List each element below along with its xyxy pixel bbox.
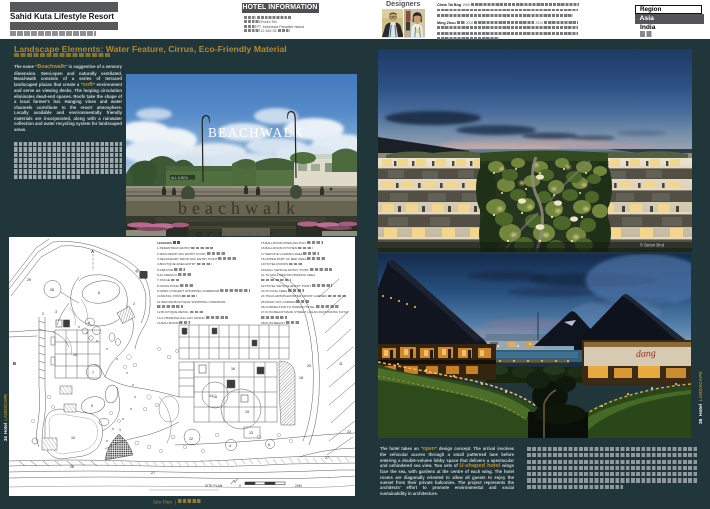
svg-text:6: 6 (268, 443, 270, 447)
svg-text:19: 19 (245, 410, 249, 414)
svg-text:beachwalk: beachwalk (178, 198, 300, 218)
svg-text:SITE PLAN: SITE PLAN (205, 484, 223, 488)
svg-text:13: 13 (249, 431, 253, 435)
svg-text:3: 3 (55, 310, 57, 314)
svg-text:2: 2 (133, 302, 135, 306)
svg-text:17: 17 (183, 332, 187, 336)
svg-text:© Beton Brut: © Beton Brut (640, 243, 665, 248)
svg-text:12: 12 (189, 437, 193, 441)
svg-text:B: B (13, 361, 16, 366)
svg-text:10: 10 (71, 436, 75, 440)
svg-text:23: 23 (347, 430, 351, 434)
svg-text:10: 10 (73, 353, 77, 357)
svg-text:20M: 20M (295, 484, 302, 488)
svg-text:ALL & BEA: ALL & BEA (171, 176, 189, 180)
svg-text:18: 18 (299, 376, 303, 380)
svg-text:7: 7 (92, 371, 94, 375)
svg-text:4: 4 (229, 444, 231, 448)
svg-text:6: 6 (88, 321, 90, 325)
svg-text:dang: dang (636, 348, 657, 360)
svg-text:8: 8 (98, 291, 100, 295)
svg-text:27: 27 (151, 471, 155, 475)
svg-text:1: 1 (119, 428, 121, 432)
svg-text:A: A (91, 249, 94, 254)
svg-text:11: 11 (339, 362, 343, 366)
svg-text:27: 27 (325, 456, 329, 460)
svg-text:2: 2 (42, 312, 44, 316)
svg-text:15: 15 (213, 395, 217, 399)
svg-text:26: 26 (70, 465, 74, 469)
svg-text:BEACHWALK: BEACHWALK (208, 125, 304, 140)
svg-text:0: 0 (239, 484, 241, 488)
svg-text:29: 29 (27, 278, 31, 282)
svg-text:5: 5 (91, 404, 93, 408)
svg-text:28: 28 (50, 288, 54, 292)
svg-text:16: 16 (231, 367, 235, 371)
svg-text:20: 20 (307, 364, 311, 368)
